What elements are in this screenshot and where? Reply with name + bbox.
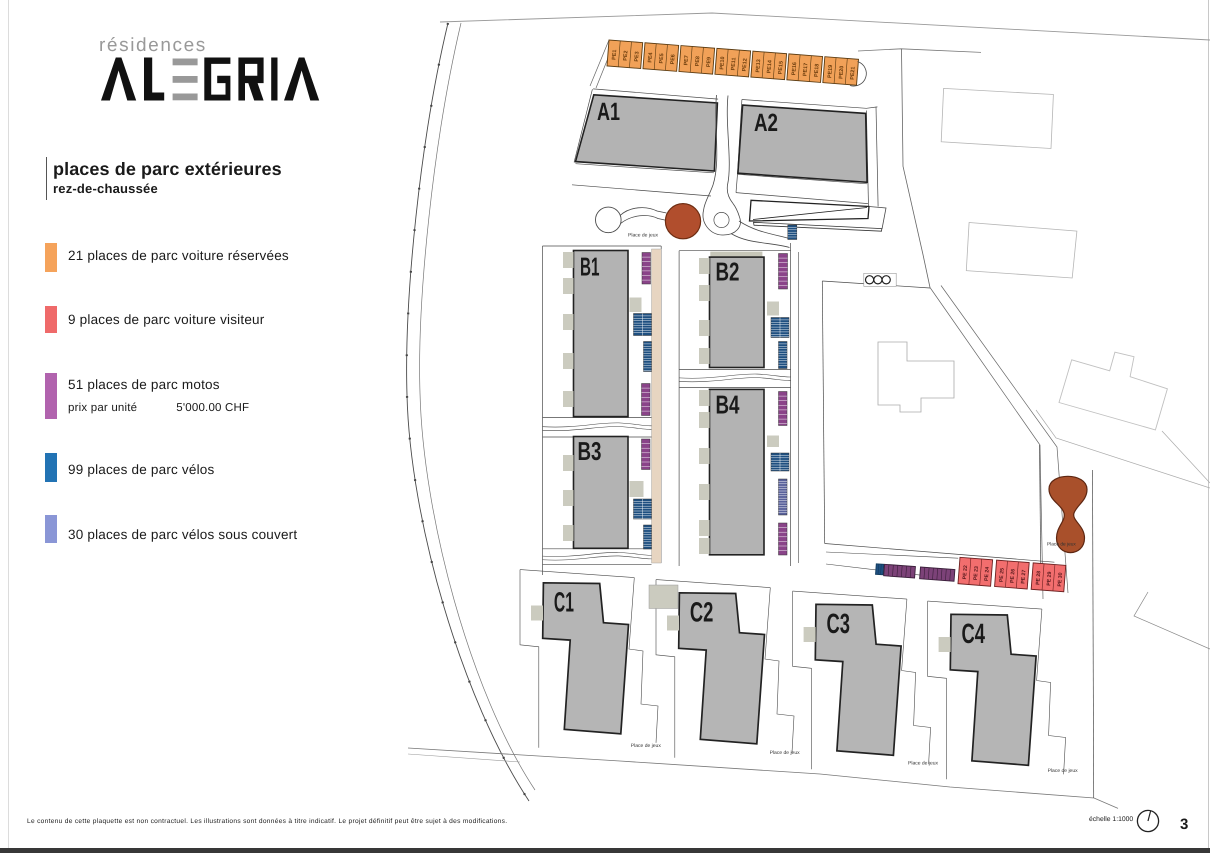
- svg-text:PE18: PE18: [814, 64, 821, 78]
- svg-text:PE 27: PE 27: [1020, 569, 1027, 584]
- svg-text:PE5: PE5: [659, 53, 666, 64]
- svg-text:Place de jeux: Place de jeux: [631, 743, 662, 749]
- svg-text:Place de jeux: Place de jeux: [1047, 542, 1076, 548]
- svg-text:PE 29: PE 29: [1046, 571, 1053, 586]
- svg-text:PE16: PE16: [791, 62, 798, 76]
- svg-text:Place de jeux: Place de jeux: [628, 233, 659, 239]
- svg-text:PE 28: PE 28: [1035, 571, 1042, 586]
- svg-text:PE11: PE11: [730, 57, 737, 70]
- svg-text:B3: B3: [578, 436, 602, 466]
- svg-text:PE3: PE3: [634, 51, 641, 62]
- svg-text:Place de jeux: Place de jeux: [908, 761, 939, 767]
- svg-text:C2: C2: [690, 597, 714, 628]
- svg-text:A1: A1: [597, 98, 620, 126]
- svg-text:Place de jeux: Place de jeux: [1048, 768, 1079, 774]
- svg-text:PE12: PE12: [742, 58, 749, 72]
- svg-text:PE6: PE6: [670, 54, 677, 65]
- svg-text:PE13: PE13: [755, 59, 762, 73]
- svg-text:PE10: PE10: [719, 56, 726, 70]
- svg-text:B2: B2: [716, 257, 740, 287]
- svg-text:PE20: PE20: [838, 66, 845, 80]
- svg-text:PE 26: PE 26: [1010, 569, 1017, 584]
- svg-text:A2: A2: [754, 109, 778, 137]
- svg-text:C1: C1: [554, 587, 574, 618]
- svg-text:PE1: PE1: [611, 49, 618, 60]
- svg-text:B4: B4: [716, 390, 740, 420]
- svg-text:PE 30: PE 30: [1057, 572, 1064, 587]
- svg-text:PE14: PE14: [766, 60, 773, 74]
- svg-text:PE8: PE8: [695, 56, 702, 67]
- svg-text:PE 23: PE 23: [973, 566, 980, 581]
- svg-text:Place de jeux: Place de jeux: [770, 750, 801, 756]
- svg-text:PE19: PE19: [827, 65, 834, 79]
- svg-text:PE7: PE7: [683, 55, 690, 66]
- svg-text:PE 25: PE 25: [999, 568, 1006, 583]
- svg-text:PE15: PE15: [778, 61, 785, 75]
- svg-text:PE2: PE2: [623, 50, 630, 61]
- svg-text:PE17: PE17: [802, 63, 809, 77]
- svg-text:PE4: PE4: [647, 52, 654, 63]
- svg-text:C3: C3: [827, 608, 851, 639]
- svg-text:PE21: PE21: [850, 66, 857, 80]
- svg-text:PE 24: PE 24: [984, 567, 991, 582]
- svg-text:C4: C4: [962, 618, 986, 649]
- svg-text:B1: B1: [580, 252, 600, 282]
- svg-text:PE 22: PE 22: [962, 565, 969, 580]
- svg-text:PE9: PE9: [706, 57, 713, 68]
